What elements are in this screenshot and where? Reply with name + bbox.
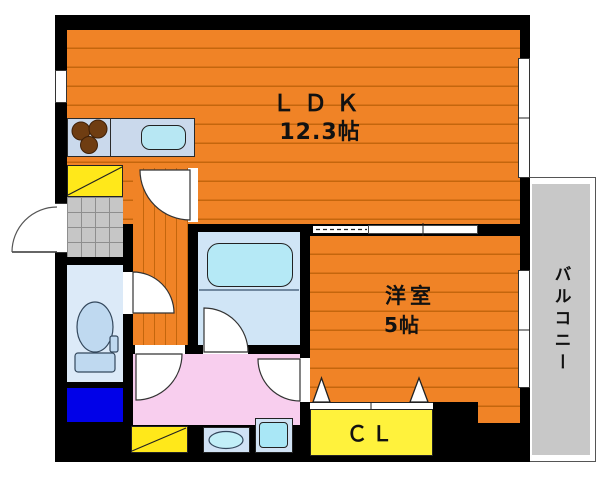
kitchen-counter-divider (110, 119, 111, 156)
floorplan-canvas: バルコニー ＣＬ (0, 0, 602, 480)
ldk-label: ＬＤＫ (250, 92, 390, 116)
hallway-floor (133, 168, 188, 345)
balcony: バルコニー (532, 184, 590, 455)
toilet-door-gap (123, 272, 133, 314)
western-room-label: 洋室 (360, 285, 460, 307)
western-washroom-door-gap (300, 358, 310, 402)
vanity-sink (203, 427, 250, 453)
washroom (133, 354, 300, 425)
western-room-size-label: 5帖 (352, 315, 452, 336)
blue-box (67, 388, 123, 422)
entrance-tiles (67, 197, 123, 257)
closet-label: ＣＬ (347, 418, 397, 448)
kitchen-window (55, 70, 67, 103)
ldk-western-partition-door (368, 225, 478, 234)
wall-step (433, 402, 478, 462)
washer-pan-inner (259, 422, 288, 448)
ldk-size-label: 12.3帖 (250, 121, 390, 144)
entrance-door-gap (55, 203, 67, 253)
bath-door-gap (203, 345, 248, 354)
ldk-western-opening (313, 226, 368, 233)
closet-door-track (310, 402, 433, 409)
ldk-balcony-window (518, 58, 530, 178)
shoe-cabinet (67, 165, 123, 197)
balcony-label: バルコニー (549, 265, 574, 375)
kitchen-sink (141, 125, 186, 150)
western-balcony-window (518, 270, 530, 388)
ldk-hall-door-gap (188, 168, 198, 222)
washroom-door-gap (135, 345, 185, 354)
entrance-door-icon (12, 207, 57, 252)
washing-machine-space (131, 426, 188, 453)
toilet-room (67, 265, 123, 382)
closet: ＣＬ (310, 409, 433, 456)
bathtub (207, 243, 293, 287)
